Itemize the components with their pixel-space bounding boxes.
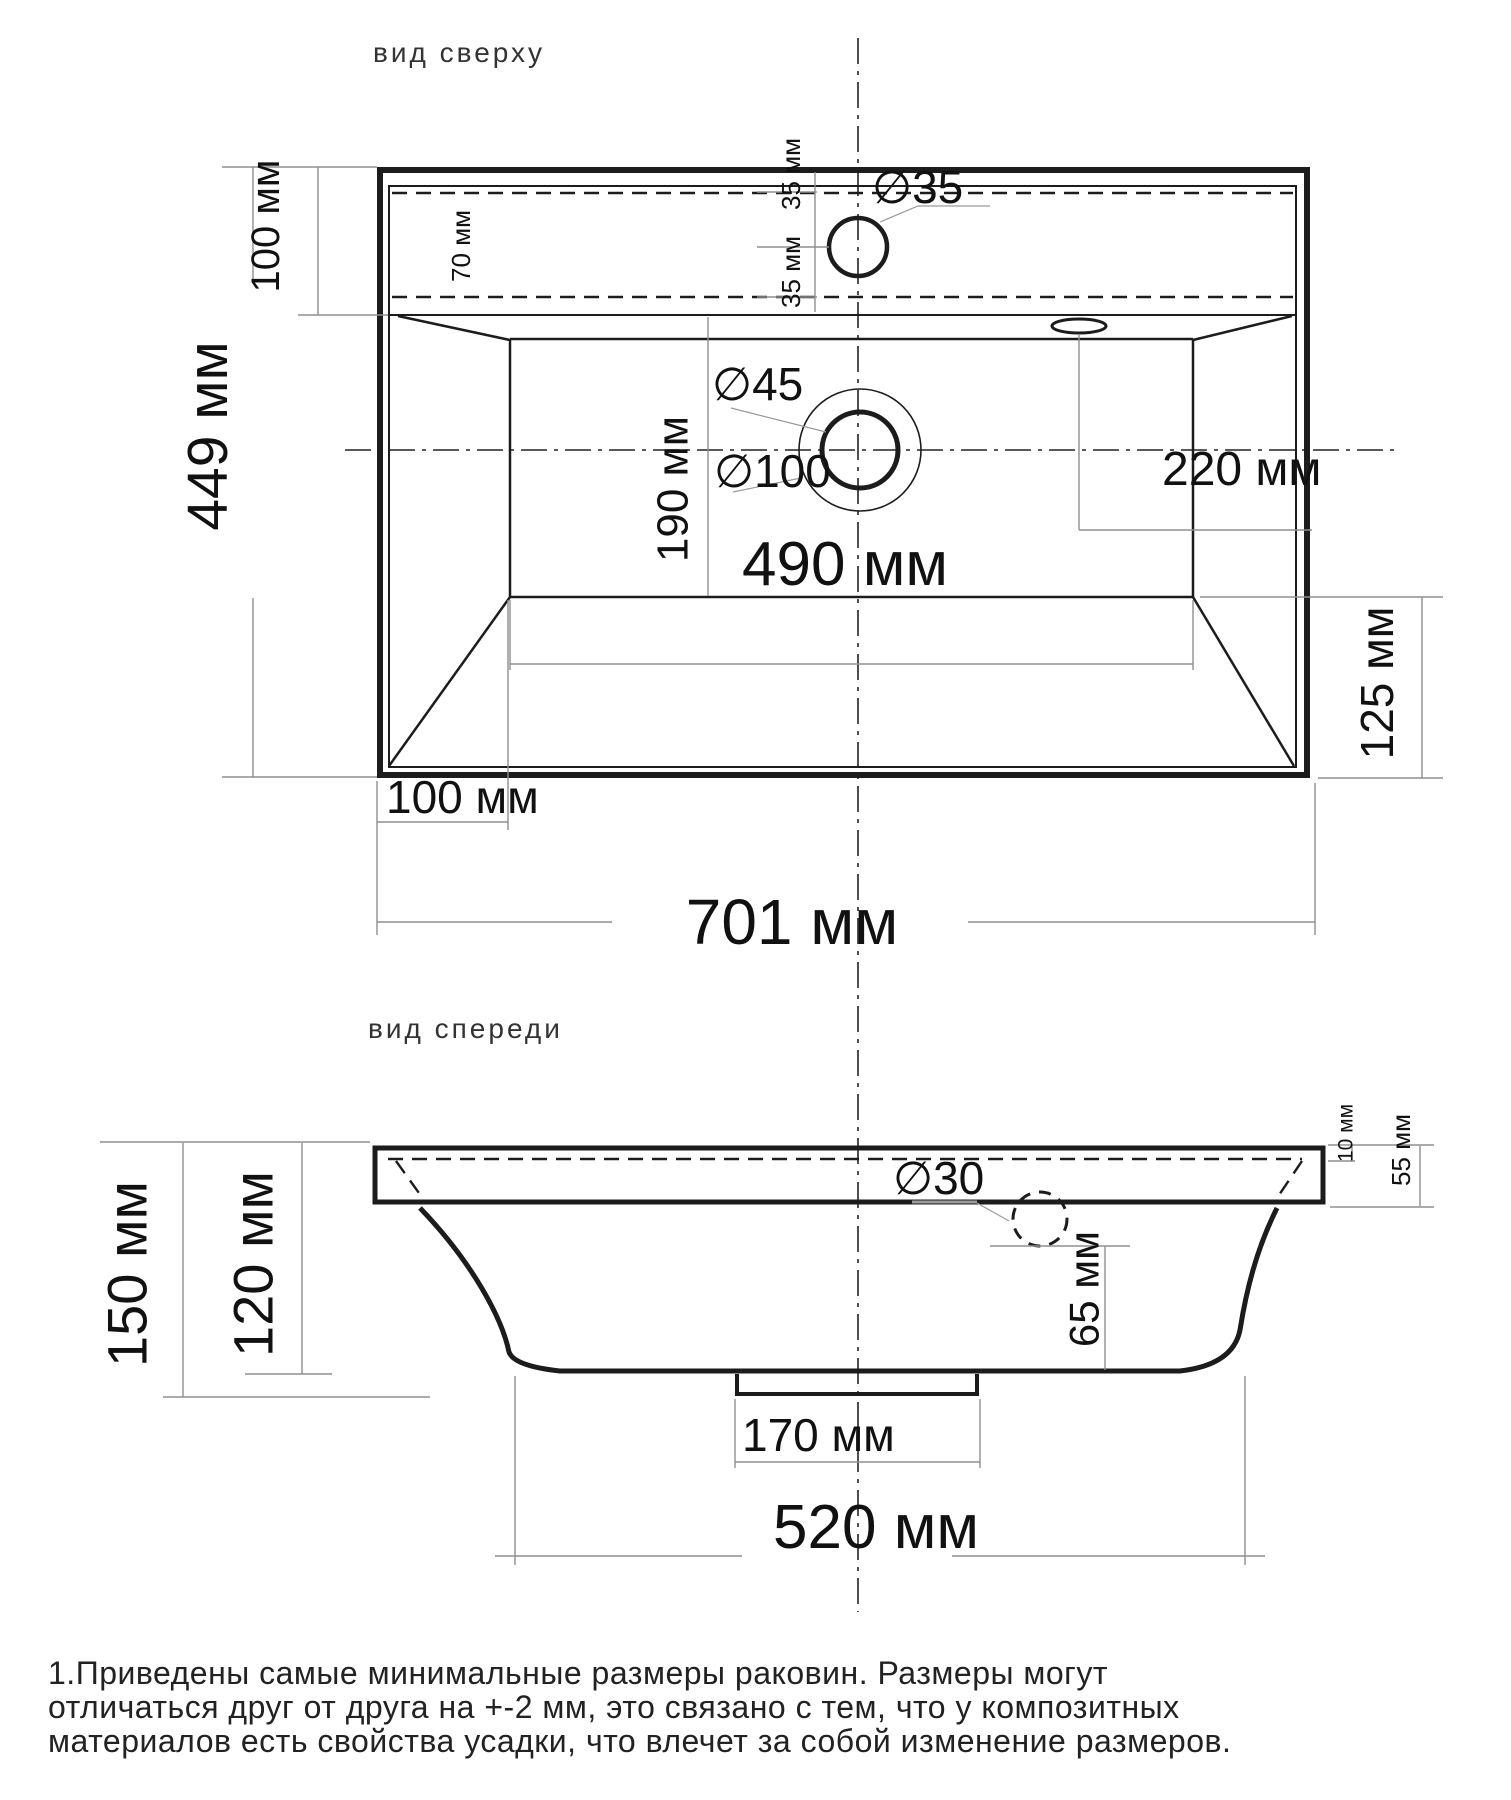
diameter-callouts: ∅35 ∅45 ∅100 bbox=[712, 161, 990, 497]
stub-width-dimension: 170 мм bbox=[735, 1399, 980, 1468]
top-view-left-dimensions: 100 мм 449 мм bbox=[176, 160, 388, 777]
dim-rim-height: 55 мм bbox=[1386, 1114, 1416, 1186]
overflow-depth-dimension: 65 мм bbox=[990, 1231, 1130, 1370]
technical-drawing-sheet: вид сверху 1 bbox=[0, 0, 1511, 1800]
dim-bottom-width: 520 мм bbox=[773, 1493, 979, 1562]
dim-bowl-height: 120 мм bbox=[222, 1171, 285, 1357]
dim-faucet-offset-lower: 35 мм bbox=[776, 236, 806, 308]
dim-overflow-offset: 220 мм bbox=[1162, 443, 1321, 496]
bottom-width-dimension: 520 мм bbox=[495, 1376, 1265, 1565]
rim-thickness-dimensions: 10 мм 55 мм bbox=[1328, 1104, 1434, 1207]
dim-side-offset: 125 мм bbox=[1351, 607, 1403, 760]
overflow-callout: ∅30 bbox=[893, 1152, 1067, 1246]
dim-overall-width: 701 мм bbox=[686, 886, 899, 958]
drain-offset-dimension: 190 мм bbox=[648, 317, 708, 596]
bowl-hidden-edge-right bbox=[1277, 1161, 1302, 1198]
dim-rim-top-offset: 10 мм bbox=[1334, 1104, 1357, 1162]
dim-ledge-depth-left: 100 мм bbox=[244, 160, 288, 293]
callout-faucet-diameter: ∅35 bbox=[872, 161, 963, 213]
basin-width-dimension: 490 мм bbox=[510, 530, 1193, 670]
note-line-2: отличаться друг от друга на +-2 мм, это … bbox=[48, 1689, 1180, 1725]
bowl-profile bbox=[420, 1208, 1277, 1371]
side-offset-dimension: 125 мм bbox=[1200, 597, 1443, 778]
rim-slab bbox=[375, 1148, 1323, 1202]
dim-stub-width: 170 мм bbox=[742, 1409, 895, 1461]
dim-deck-hidden-width: 70 мм bbox=[446, 210, 476, 282]
notes: 1.Приведены самые минимальные размеры ра… bbox=[48, 1655, 1231, 1759]
note-line-1: 1.Приведены самые минимальные размеры ра… bbox=[48, 1655, 1108, 1691]
sink-dimension-drawing: вид сверху 1 bbox=[0, 0, 1511, 1800]
height-dimensions: 150 мм 120 мм bbox=[96, 1142, 430, 1397]
front-view: вид спереди ∅30 65 мм 10 мм bbox=[96, 1013, 1434, 1565]
drain-stub bbox=[737, 1374, 977, 1394]
dim-overall-depth: 449 мм bbox=[176, 341, 240, 530]
dim-basin-width: 490 мм bbox=[742, 530, 948, 599]
callout-drain-recess-diameter: ∅100 bbox=[714, 445, 831, 497]
dim-drain-offset: 190 мм bbox=[648, 416, 697, 562]
bowl-hidden-edge-left bbox=[396, 1161, 424, 1200]
overflow-offset-dimension: 220 мм bbox=[1079, 334, 1321, 530]
top-view: вид сверху 1 bbox=[176, 37, 1443, 958]
top-view-title: вид сверху bbox=[373, 37, 545, 68]
dim-overflow-depth: 65 мм bbox=[1061, 1231, 1108, 1347]
note-line-3: материалов есть свойства усадки, что вле… bbox=[48, 1723, 1231, 1759]
front-view-title: вид спереди bbox=[368, 1013, 563, 1044]
faucet-offset-dimensions: 35 мм 35 мм bbox=[757, 138, 829, 312]
callout-overflow-diameter: ∅30 bbox=[893, 1152, 984, 1204]
callout-drain-diameter: ∅45 bbox=[712, 358, 803, 410]
dim-corner-offset: 100 мм bbox=[386, 771, 539, 823]
overflow-slot bbox=[1052, 319, 1106, 333]
dim-faucet-offset-upper: 35 мм bbox=[776, 138, 806, 210]
dim-overall-height: 150 мм bbox=[96, 1181, 159, 1367]
